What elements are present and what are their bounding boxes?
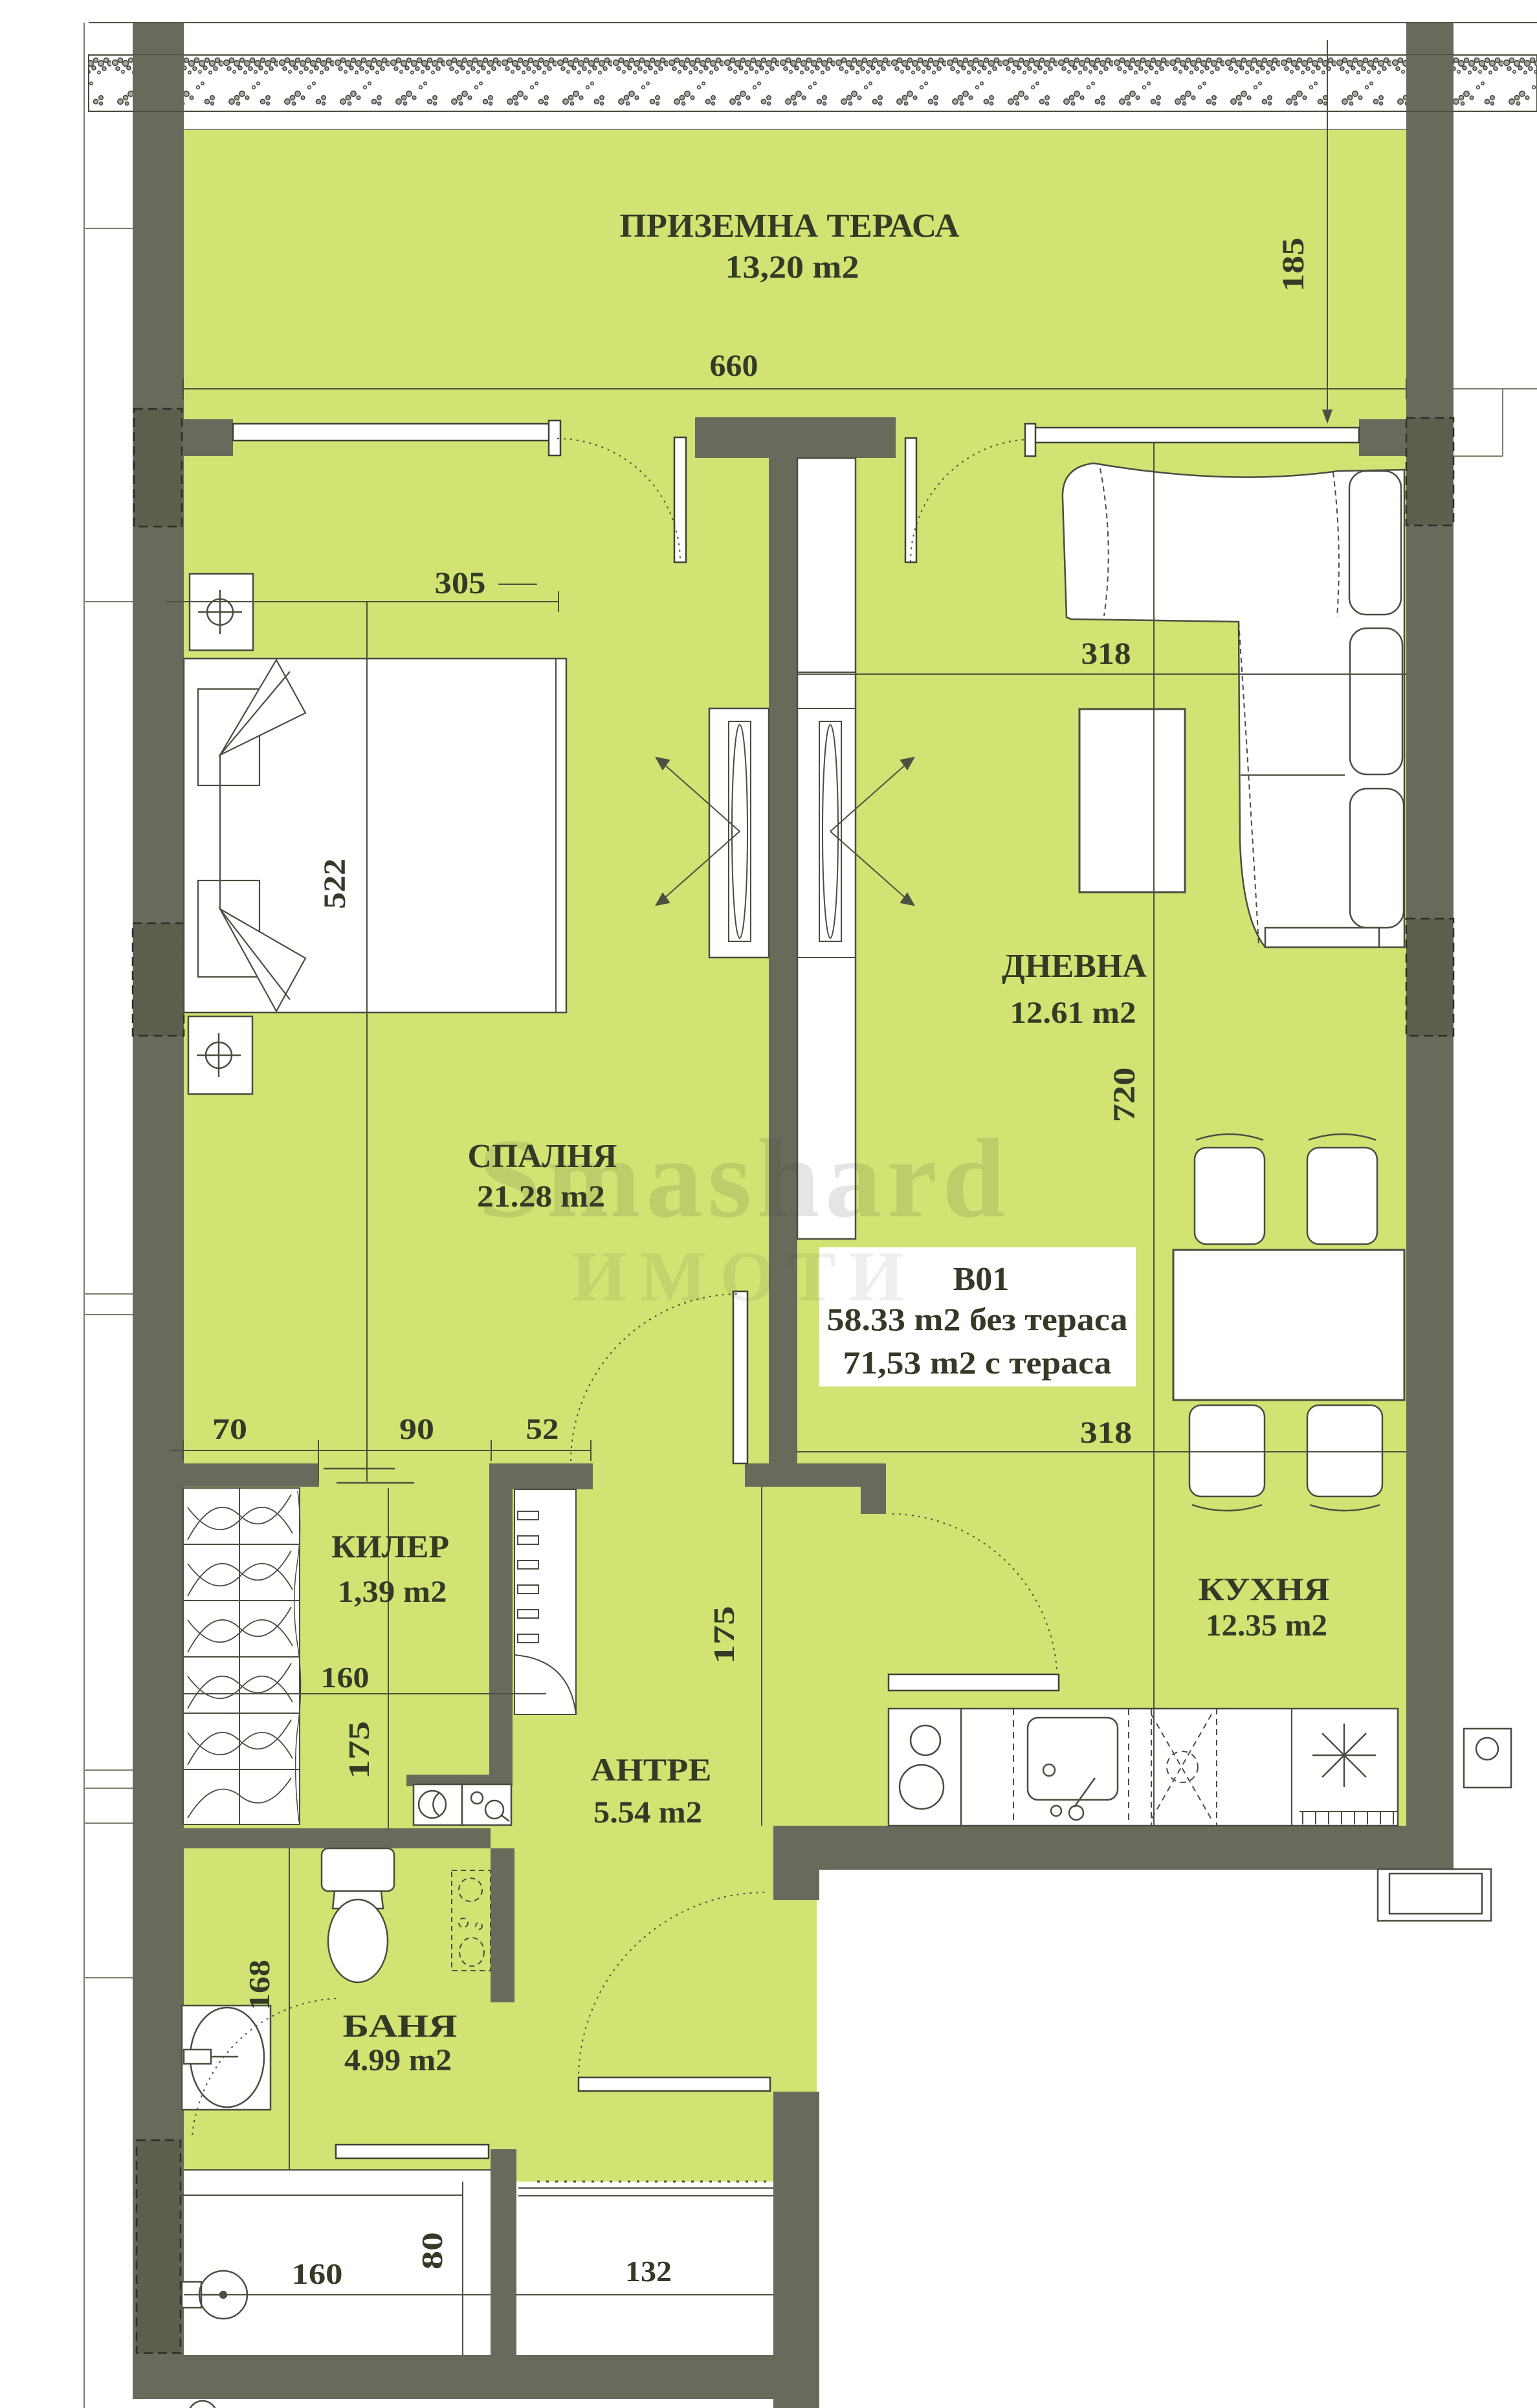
svg-text:4.99 m2: 4.99 m2 — [344, 2043, 452, 2077]
svg-text:БАНЯ: БАНЯ — [343, 2008, 458, 2044]
svg-text:305: 305 — [435, 566, 486, 600]
svg-text:175: 175 — [707, 1606, 740, 1664]
svg-text:318: 318 — [1081, 637, 1131, 671]
svg-text:1,39 m2: 1,39 m2 — [338, 1575, 447, 1609]
svg-text:175: 175 — [342, 1721, 375, 1779]
svg-text:185: 185 — [1276, 237, 1310, 292]
svg-text:80: 80 — [415, 2232, 448, 2270]
svg-text:13,20 m2: 13,20 m2 — [725, 248, 859, 285]
svg-text:318: 318 — [1080, 1416, 1132, 1450]
svg-text:12.35 m2: 12.35 m2 — [1206, 1608, 1327, 1643]
svg-text:70: 70 — [212, 1412, 247, 1445]
svg-text:КИЛЕР: КИЛЕР — [331, 1528, 449, 1564]
svg-text:132: 132 — [625, 2255, 672, 2288]
svg-text:АНТРЕ: АНТРЕ — [591, 1751, 712, 1788]
svg-text:Smashard: Smashard — [478, 1115, 1011, 1241]
svg-text:160: 160 — [321, 1661, 370, 1694]
svg-text:90: 90 — [399, 1412, 434, 1445]
svg-text:720: 720 — [1107, 1067, 1142, 1122]
svg-text:5.54 m2: 5.54 m2 — [593, 1795, 702, 1830]
svg-text:52: 52 — [526, 1412, 559, 1445]
svg-text:522: 522 — [318, 859, 352, 909]
svg-text:12.61 m2: 12.61 m2 — [1010, 996, 1136, 1030]
svg-text:160: 160 — [292, 2257, 343, 2290]
svg-text:ПРИЗЕМНА ТЕРАСА: ПРИЗЕМНА ТЕРАСА — [620, 208, 960, 245]
svg-text:168: 168 — [243, 1960, 276, 2010]
svg-text:660: 660 — [710, 349, 758, 383]
svg-text:58.33 m2 без тераса: 58.33 m2 без тераса — [827, 1301, 1128, 1337]
svg-text:B01: B01 — [953, 1261, 1010, 1298]
svg-text:21.28 m2: 21.28 m2 — [477, 1179, 605, 1214]
svg-text:СПАЛНЯ: СПАЛНЯ — [468, 1138, 617, 1175]
svg-text:71,53 m2 с тераса: 71,53 m2 с тераса — [843, 1344, 1112, 1381]
svg-text:КУХНЯ: КУХНЯ — [1199, 1571, 1330, 1607]
svg-text:ДНЕВНА: ДНЕВНА — [1002, 948, 1147, 985]
